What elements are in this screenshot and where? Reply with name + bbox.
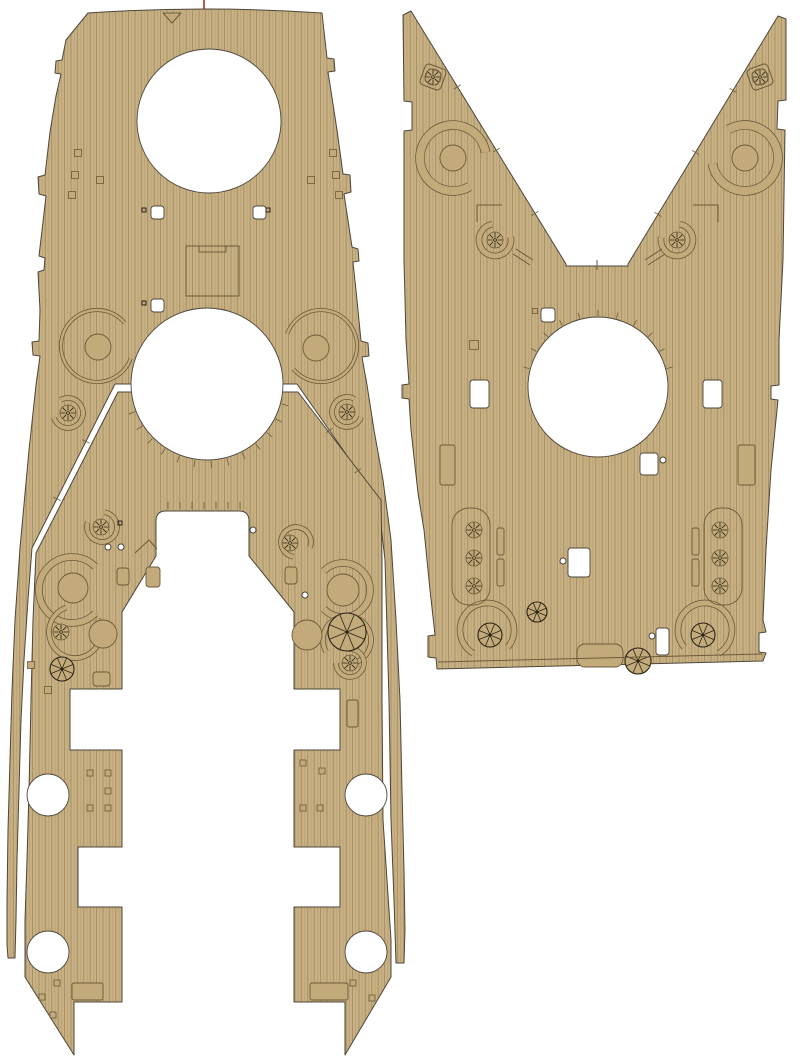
- winch-wheel-hub: [536, 611, 539, 614]
- structure-outline: [692, 559, 699, 586]
- structure-outline: [93, 672, 110, 686]
- eyelet-dot: [250, 527, 256, 533]
- deck-fitting-square: [105, 788, 111, 794]
- deck-fitting-square: [308, 177, 315, 184]
- deck-fitting-square: [97, 177, 104, 184]
- deck-fitting-square: [350, 980, 356, 986]
- deck-fitting-square: [300, 805, 306, 811]
- structure-outline: [347, 700, 358, 727]
- deck-fitting-square: [69, 192, 76, 199]
- structure-outline: [497, 528, 504, 555]
- deck-fitting-square: [330, 150, 337, 157]
- structure-outline: [440, 445, 455, 485]
- cutout-circle: [27, 774, 69, 816]
- cutout-rect: [470, 380, 489, 408]
- structure-outline: [285, 567, 297, 584]
- gun-platform-circle: [58, 573, 88, 603]
- cutout-circle: [137, 49, 281, 193]
- winch-wheel-hub: [489, 634, 492, 637]
- cutout-circle: [131, 308, 283, 460]
- deck-fitting-square: [105, 770, 111, 776]
- main-deck-piece: [25, 392, 391, 1055]
- structure-outline: [310, 983, 348, 1000]
- deck-fitting-square: [45, 687, 52, 694]
- eyelet-dot: [105, 544, 111, 550]
- deck-fitting-square: [54, 980, 60, 986]
- cutout-rect: [703, 380, 722, 408]
- cutout-rect: [151, 206, 164, 219]
- deck-fitting-square: [369, 995, 375, 1001]
- deck-fitting-square: [317, 805, 323, 811]
- deck-sheet-svg: [0, 0, 800, 1057]
- gun-platform-circle: [732, 145, 758, 171]
- cutout-circle: [528, 317, 668, 457]
- deck-plating-sheet: [0, 0, 800, 1057]
- cutout-circle: [27, 931, 69, 973]
- deck-fitting-square: [470, 341, 479, 350]
- cutout-rect: [151, 299, 164, 312]
- gun-platform-circle: [89, 620, 117, 648]
- gun-platform-circle: [327, 574, 359, 606]
- eyelet-dot: [118, 544, 124, 550]
- cutout-circle: [345, 931, 387, 973]
- pieces-layer: [7, 9, 786, 1055]
- structure-outline: [497, 559, 504, 586]
- deck-fitting-square: [50, 1012, 56, 1018]
- deck-fitting-square: [333, 172, 340, 179]
- cutout-rect: [568, 548, 590, 577]
- structure-outline: [72, 983, 103, 1000]
- winch-wheel-hub: [702, 634, 705, 637]
- cutout-rect: [656, 628, 669, 655]
- deck-fitting-square: [105, 805, 111, 811]
- eyelet-dot: [560, 558, 566, 564]
- deck-fitting-square: [87, 805, 93, 811]
- eyelet-dot: [649, 633, 655, 639]
- eyelet-dot: [302, 592, 308, 598]
- cutout-circle: [345, 774, 387, 816]
- deck-fitting-square: [87, 770, 93, 776]
- cutout-rect: [640, 453, 658, 475]
- cutout-rect: [541, 308, 555, 322]
- deck-fitting-square: [336, 192, 343, 199]
- gun-platform-circle: [440, 145, 466, 171]
- winch-wheel-hub: [346, 631, 349, 634]
- cutout-rect: [253, 206, 266, 219]
- gun-platform-circle: [85, 334, 111, 360]
- gun-platform-circle: [292, 620, 322, 650]
- structure-outline: [692, 528, 699, 555]
- gun-platform-circle: [303, 335, 329, 361]
- structure-outline: [577, 644, 623, 667]
- deck-fitting-square: [75, 150, 82, 157]
- deck-fitting-square: [72, 172, 79, 179]
- eyelet-dot: [660, 457, 666, 463]
- deck-fitting-square: [39, 994, 45, 1000]
- structure-outline: [738, 445, 755, 485]
- structure-outline: [117, 568, 129, 585]
- winch-wheel-hub: [61, 668, 64, 671]
- structure-outline: [146, 567, 160, 587]
- deck-fitting-square: [300, 760, 306, 766]
- deck-fitting-square: [319, 768, 325, 774]
- deck-fitting-square: [28, 662, 35, 669]
- deck-fitting-square: [533, 309, 538, 314]
- winch-wheel-hub: [637, 660, 640, 663]
